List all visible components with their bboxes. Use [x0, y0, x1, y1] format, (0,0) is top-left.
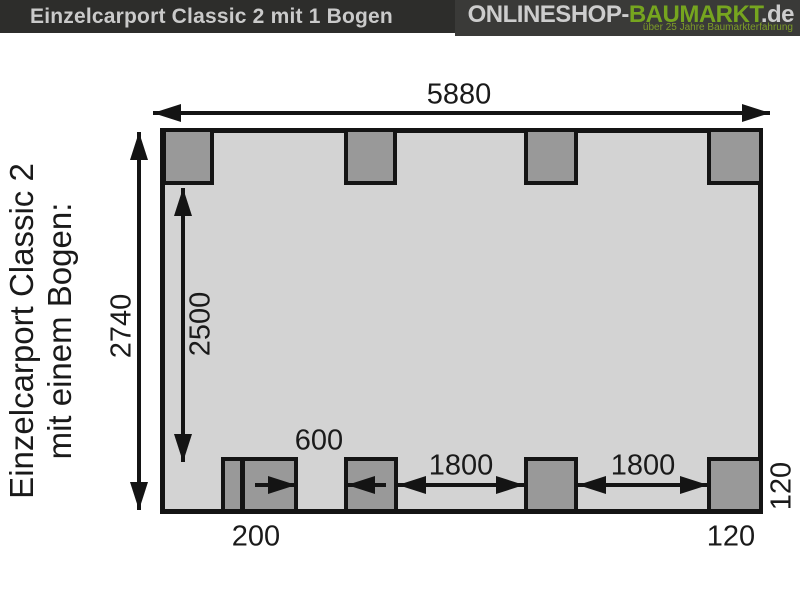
- dim-label-600: 600: [295, 427, 343, 456]
- dim-arrow-2740: [137, 132, 141, 510]
- dim-label-2500: 2500: [187, 292, 216, 357]
- dim-label-5880: 5880: [427, 81, 492, 110]
- screenshot-root: Einzelcarport Classic 2 mit 1 Bogen ONLI…: [0, 0, 800, 600]
- post-bottom-4: [707, 457, 763, 513]
- dim-label-200: 200: [232, 523, 280, 552]
- dim-label-120-bottom: 120: [707, 523, 755, 552]
- dim-label-1800-left: 1800: [429, 452, 494, 481]
- shop-logo: ONLINESHOP-BAUMARKT.de über 25 Jahre Bau…: [455, 0, 800, 36]
- header-bar: Einzelcarport Classic 2 mit 1 Bogen ONLI…: [0, 0, 800, 33]
- dim-arrow-600-pointer-right: [255, 483, 296, 487]
- dim-arrow-600-pointer-left: [347, 483, 386, 487]
- dim-arrow-1800-left: [398, 483, 524, 487]
- dim-arrow-1800-right: [578, 483, 708, 487]
- dim-label-1800-right: 1800: [611, 452, 676, 481]
- dim-arrow-5880: [153, 111, 770, 115]
- dim-label-120-right: 120: [768, 462, 797, 510]
- dim-label-2740: 2740: [108, 294, 137, 359]
- post-top-4: [707, 128, 763, 185]
- product-side-label: Einzelcarport Classic 2 mit einem Bogen:: [3, 163, 79, 499]
- post-top-1: [162, 128, 214, 185]
- post-top-3: [524, 128, 578, 185]
- post-bottom-1-divider: [240, 461, 245, 509]
- side-label-line1: Einzelcarport Classic 2: [3, 163, 41, 499]
- logo-part-onlineshop: ONLINESHOP-: [468, 1, 629, 28]
- post-top-2: [344, 128, 397, 185]
- post-bottom-3: [524, 457, 578, 513]
- side-label-line2: mit einem Bogen:: [41, 163, 79, 499]
- page-title: Einzelcarport Classic 2 mit 1 Bogen: [30, 0, 393, 33]
- logo-tagline: über 25 Jahre Baumarkterfahrung: [643, 22, 793, 33]
